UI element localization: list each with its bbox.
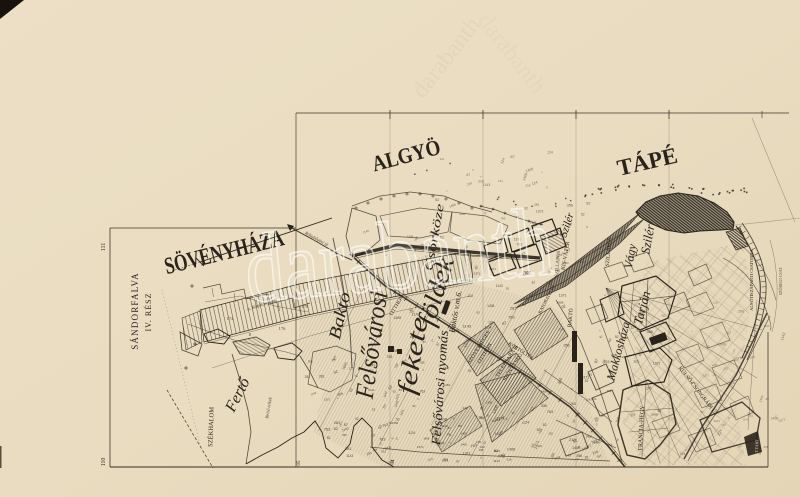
svg-text:356: 356 (564, 343, 570, 347)
svg-text:1143: 1143 (586, 398, 592, 402)
svg-text:763: 763 (570, 402, 576, 406)
svg-text:356: 356 (700, 411, 705, 413)
svg-text:52: 52 (396, 417, 400, 421)
svg-text:763: 763 (381, 449, 386, 453)
svg-text:281: 281 (575, 411, 580, 415)
svg-text:281: 281 (305, 375, 311, 379)
svg-text:1371: 1371 (580, 260, 587, 264)
svg-text:124: 124 (498, 179, 503, 183)
svg-text:1408: 1408 (651, 413, 658, 417)
svg-text:218: 218 (478, 180, 484, 184)
svg-text:763: 763 (443, 458, 449, 462)
svg-text:52: 52 (585, 379, 589, 383)
svg-text:1408: 1408 (585, 434, 592, 438)
svg-text:356: 356 (738, 308, 744, 313)
svg-text:c: c (396, 437, 398, 441)
svg-text:B.T.TART: B.T.TART (754, 439, 760, 456)
svg-text:1143: 1143 (764, 324, 770, 328)
svg-text:52: 52 (543, 423, 547, 427)
svg-text:281: 281 (587, 372, 592, 376)
svg-text:218: 218 (569, 437, 575, 442)
svg-text:356: 356 (393, 421, 398, 425)
svg-text:87: 87 (523, 303, 527, 307)
svg-text:218: 218 (712, 363, 717, 367)
svg-text:218: 218 (526, 184, 531, 188)
svg-text:218: 218 (507, 458, 512, 462)
svg-text:c: c (419, 191, 421, 195)
svg-text:124: 124 (523, 420, 529, 424)
svg-text:87: 87 (537, 428, 541, 432)
svg-text:281: 281 (510, 306, 516, 310)
svg-text:87: 87 (510, 154, 514, 159)
svg-text:281: 281 (319, 374, 325, 378)
svg-text:1371: 1371 (417, 445, 424, 449)
svg-text:1408: 1408 (487, 304, 494, 308)
svg-text:SZÉKHALOM: SZÉKHALOM (206, 407, 215, 448)
svg-text:124: 124 (408, 430, 415, 435)
svg-text:92: 92 (479, 415, 483, 419)
svg-text:176: 176 (279, 326, 287, 331)
svg-text:218: 218 (549, 432, 554, 435)
svg-text:1408: 1408 (718, 342, 726, 346)
svg-text:87: 87 (344, 423, 348, 427)
svg-text:IV. RÉSZ: IV. RÉSZ (143, 293, 153, 332)
svg-text:763: 763 (324, 426, 331, 431)
svg-text:c: c (506, 417, 508, 421)
svg-text:356: 356 (458, 425, 463, 428)
svg-text:1143: 1143 (493, 459, 500, 463)
svg-text:763: 763 (387, 355, 393, 359)
svg-text:52: 52 (412, 404, 416, 408)
svg-text:52: 52 (334, 426, 338, 431)
svg-text:281: 281 (345, 447, 351, 451)
svg-text:1371: 1371 (559, 294, 567, 298)
svg-text:1408: 1408 (486, 400, 492, 404)
svg-text:218: 218 (713, 300, 718, 304)
svg-text:1408: 1408 (461, 442, 467, 446)
svg-text:1371: 1371 (713, 419, 720, 423)
svg-text:124: 124 (636, 328, 642, 332)
svg-text:110: 110 (101, 458, 107, 467)
svg-text:356: 356 (541, 404, 547, 408)
svg-text:1408: 1408 (393, 316, 401, 320)
svg-text:SÁNDORFALVA: SÁNDORFALVA (130, 272, 140, 350)
svg-text:124: 124 (547, 151, 553, 155)
svg-text:1371: 1371 (703, 374, 710, 378)
svg-text:763: 763 (508, 314, 515, 319)
svg-text:05: 05 (297, 460, 302, 466)
svg-text:356: 356 (764, 445, 769, 449)
svg-text:1371: 1371 (558, 328, 565, 332)
svg-text:1408: 1408 (461, 432, 468, 436)
svg-text:1371: 1371 (476, 440, 482, 444)
svg-text:52: 52 (658, 409, 662, 413)
svg-text:281: 281 (723, 366, 728, 370)
svg-text:124: 124 (538, 445, 543, 448)
svg-text:1408: 1408 (594, 441, 600, 444)
svg-text:763: 763 (679, 452, 685, 456)
svg-text:1408: 1408 (572, 446, 580, 450)
svg-text:124: 124 (592, 398, 597, 401)
svg-text:92: 92 (468, 369, 472, 373)
svg-text:1371: 1371 (324, 398, 331, 402)
svg-text:52: 52 (372, 407, 376, 411)
svg-text:356: 356 (308, 359, 313, 363)
svg-text:1143: 1143 (743, 419, 749, 422)
svg-text:218: 218 (492, 420, 497, 423)
svg-text:1408: 1408 (507, 448, 515, 452)
svg-text:87: 87 (466, 173, 470, 177)
svg-text:111: 111 (101, 243, 107, 252)
svg-text:124: 124 (607, 389, 612, 393)
svg-text:356: 356 (723, 407, 728, 411)
svg-text:356: 356 (342, 433, 347, 437)
svg-text:92: 92 (476, 311, 480, 315)
svg-text:124: 124 (488, 320, 494, 324)
svg-text:87: 87 (766, 397, 770, 401)
svg-text:c: c (453, 416, 455, 421)
svg-text:92: 92 (345, 361, 349, 365)
svg-text:763: 763 (547, 410, 553, 414)
svg-text:1143: 1143 (479, 446, 485, 449)
svg-text:1143: 1143 (494, 449, 501, 453)
svg-text:92: 92 (585, 455, 589, 459)
svg-text:ALSÓTISZAPARTI CSATORNA: ALSÓTISZAPARTI CSATORNA (749, 248, 754, 310)
svg-text:1371: 1371 (633, 359, 640, 363)
svg-text:52: 52 (327, 436, 331, 440)
svg-text:c: c (648, 429, 650, 433)
svg-text:1408: 1408 (541, 389, 548, 393)
svg-text:356: 356 (567, 203, 573, 207)
svg-text:174: 174 (227, 316, 235, 321)
svg-text:218: 218 (463, 406, 468, 410)
svg-text:92: 92 (671, 417, 675, 421)
svg-text:124: 124 (485, 325, 492, 330)
svg-text:87: 87 (568, 454, 572, 458)
svg-text:356: 356 (647, 330, 653, 334)
svg-text:1408: 1408 (495, 432, 502, 436)
svg-text:1143: 1143 (463, 323, 471, 328)
svg-text:1371: 1371 (653, 361, 661, 365)
svg-text:92: 92 (355, 417, 359, 421)
svg-text:c: c (567, 414, 569, 418)
svg-text:c: c (728, 416, 730, 420)
svg-text:87: 87 (456, 460, 460, 464)
svg-text:SZÖREGI CSAT.: SZÖREGI CSAT. (778, 267, 783, 295)
svg-text:52: 52 (581, 213, 585, 217)
svg-text:87: 87 (448, 426, 452, 430)
svg-text:763: 763 (389, 421, 394, 425)
svg-text:92: 92 (661, 313, 665, 318)
svg-text:92: 92 (586, 201, 590, 205)
svg-text:1143: 1143 (346, 454, 353, 458)
svg-text:356: 356 (703, 428, 708, 432)
